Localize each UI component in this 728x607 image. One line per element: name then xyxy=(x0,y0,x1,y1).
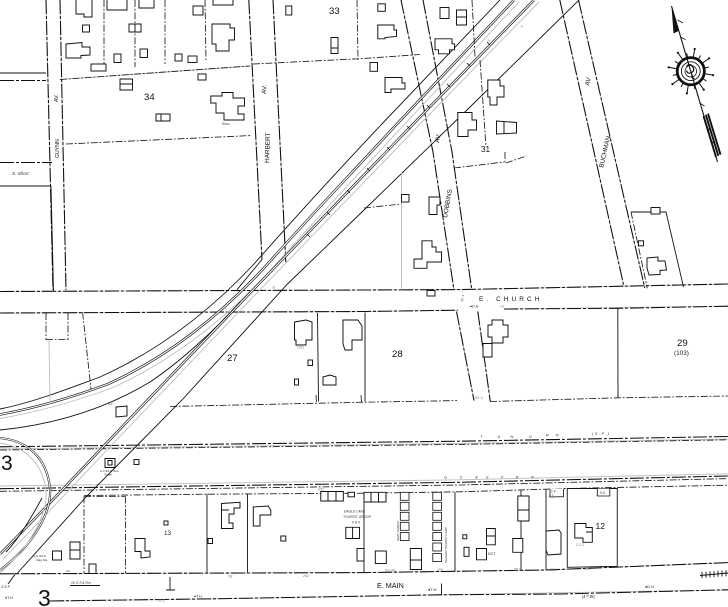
svg-text:25.0: 25.0 xyxy=(514,568,521,572)
svg-text:E. MAIN: E. MAIN xyxy=(377,581,404,590)
svg-text:E. CHURCH: E. CHURCH xyxy=(479,296,542,303)
svg-text:31: 31 xyxy=(481,145,491,154)
svg-text:V.C.: V.C. xyxy=(600,491,606,495)
svg-text:13': 13' xyxy=(500,305,505,309)
svg-text:5 & 6: 5 & 6 xyxy=(352,521,360,525)
svg-text:252: 252 xyxy=(318,488,324,492)
svg-text:AV.: AV. xyxy=(261,84,268,94)
svg-text:St|: St| xyxy=(590,594,595,599)
svg-text:AV.: AV. xyxy=(54,95,60,103)
svg-text:T. & N. O.: T. & N. O. xyxy=(480,434,542,439)
svg-text:40' 4: 40' 4 xyxy=(475,396,483,400)
svg-text:150: 150 xyxy=(437,568,443,572)
svg-text:Flag Sta.: Flag Sta. xyxy=(36,558,48,562)
svg-text:KOZY KABINS: KOZY KABINS xyxy=(396,521,400,541)
svg-text:S. Short: S. Short xyxy=(12,171,29,176)
svg-text:Ross: Ross xyxy=(222,122,230,126)
svg-text:33: 33 xyxy=(329,6,340,17)
svg-text:3: 3 xyxy=(38,585,51,607)
svg-text:28: 28 xyxy=(392,349,403,360)
svg-text:3: 3 xyxy=(1,452,13,475)
svg-text:2 C: 2 C xyxy=(549,494,555,498)
svg-text:Tower: Tower xyxy=(104,473,113,477)
svg-text:1 F: 1 F xyxy=(551,490,556,494)
svg-text:●D.H.: ●D.H. xyxy=(470,305,479,309)
svg-text:(S.P.): (S.P.) xyxy=(592,431,610,436)
svg-text:252: 252 xyxy=(303,574,309,578)
svg-text:27: 27 xyxy=(227,353,238,364)
svg-text:(103): (103) xyxy=(674,350,689,357)
svg-text:169: 169 xyxy=(584,567,590,571)
svg-text:30.5': 30.5' xyxy=(158,599,166,603)
svg-text:●D.H.: ●D.H. xyxy=(645,585,655,589)
svg-text:Jct.: Jct. xyxy=(66,569,71,573)
svg-text:HARBERT: HARBERT xyxy=(264,132,272,163)
svg-text:GUYNN: GUYNN xyxy=(55,139,61,158)
svg-text:12: 12 xyxy=(596,521,606,531)
svg-text:2.2.2: 2.2.2 xyxy=(576,543,584,547)
svg-text:1931: 1931 xyxy=(297,346,304,350)
svg-text:4' E.P.: 4' E.P. xyxy=(1,585,11,589)
svg-text:G. C. & S. F. R. R.: G. C. & S. F. R. R. xyxy=(444,475,542,480)
svg-text:5½ 4½: 5½ 4½ xyxy=(385,569,396,573)
svg-text:DCT: DCT xyxy=(488,552,496,556)
svg-text:13: 13 xyxy=(164,530,172,537)
svg-text:34: 34 xyxy=(144,92,155,103)
svg-text:29: 29 xyxy=(677,338,688,349)
svg-text:28': 28' xyxy=(228,575,233,579)
svg-text:R.R.: R.R. xyxy=(546,433,566,438)
svg-text:●T.H.: ●T.H. xyxy=(428,587,438,592)
svg-text:'9': '9' xyxy=(272,286,276,290)
svg-text:S.T.: S.T. xyxy=(108,402,114,406)
svg-text:SHADED TOURIST CAMP: SHADED TOURIST CAMP xyxy=(444,527,448,563)
svg-text:●T.H.: ●T.H. xyxy=(5,596,14,600)
svg-text:EAGLE LAKE: EAGLE LAKE xyxy=(344,510,366,514)
svg-text:258: 258 xyxy=(550,568,556,572)
svg-text:10' E.F.& Rm.: 10' E.F.& Rm. xyxy=(71,581,92,585)
svg-text:●T.H.: ●T.H. xyxy=(194,595,203,599)
svg-text:45' 1: 45' 1 xyxy=(620,284,627,288)
svg-text:TOURIST GROUP: TOURIST GROUP xyxy=(343,515,372,519)
